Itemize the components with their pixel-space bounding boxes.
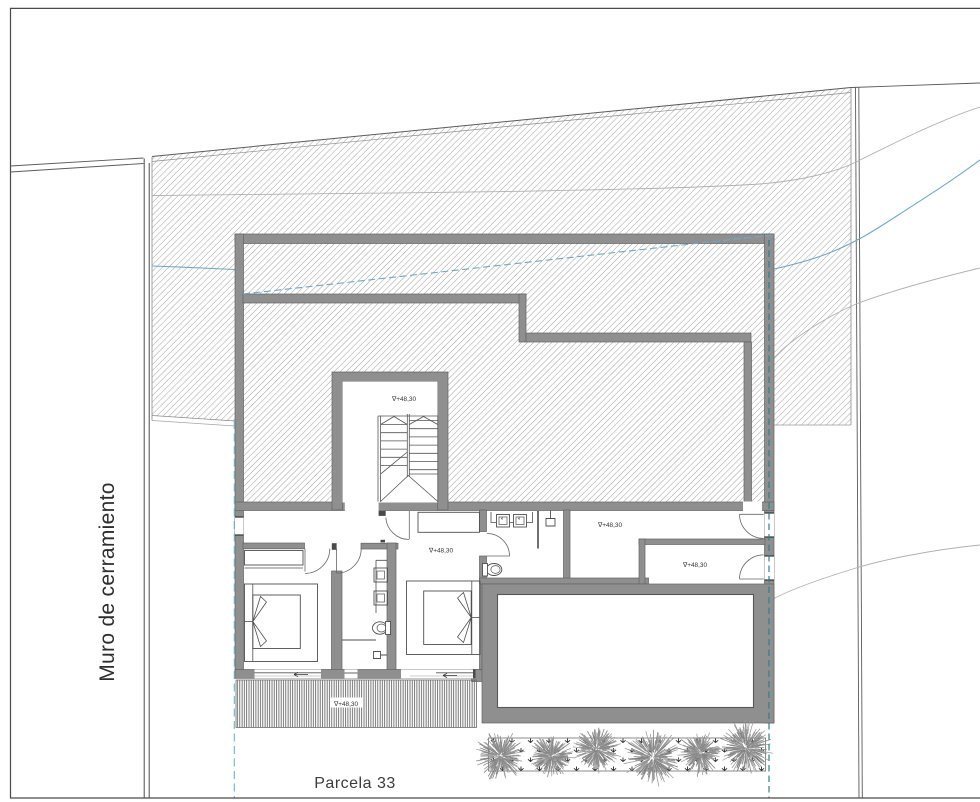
svg-text:∇+48,30: ∇+48,30 — [391, 396, 416, 403]
svg-text:∇+48,30: ∇+48,30 — [428, 548, 453, 555]
svg-text:∇+48,30: ∇+48,30 — [682, 562, 707, 569]
svg-text:Muro de cerramiento: Muro de cerramiento — [96, 482, 119, 681]
svg-text:Parcela 33: Parcela 33 — [314, 775, 396, 792]
svg-text:∇+48,30: ∇+48,30 — [597, 522, 622, 529]
svg-text:∇+48,30: ∇+48,30 — [333, 701, 358, 708]
